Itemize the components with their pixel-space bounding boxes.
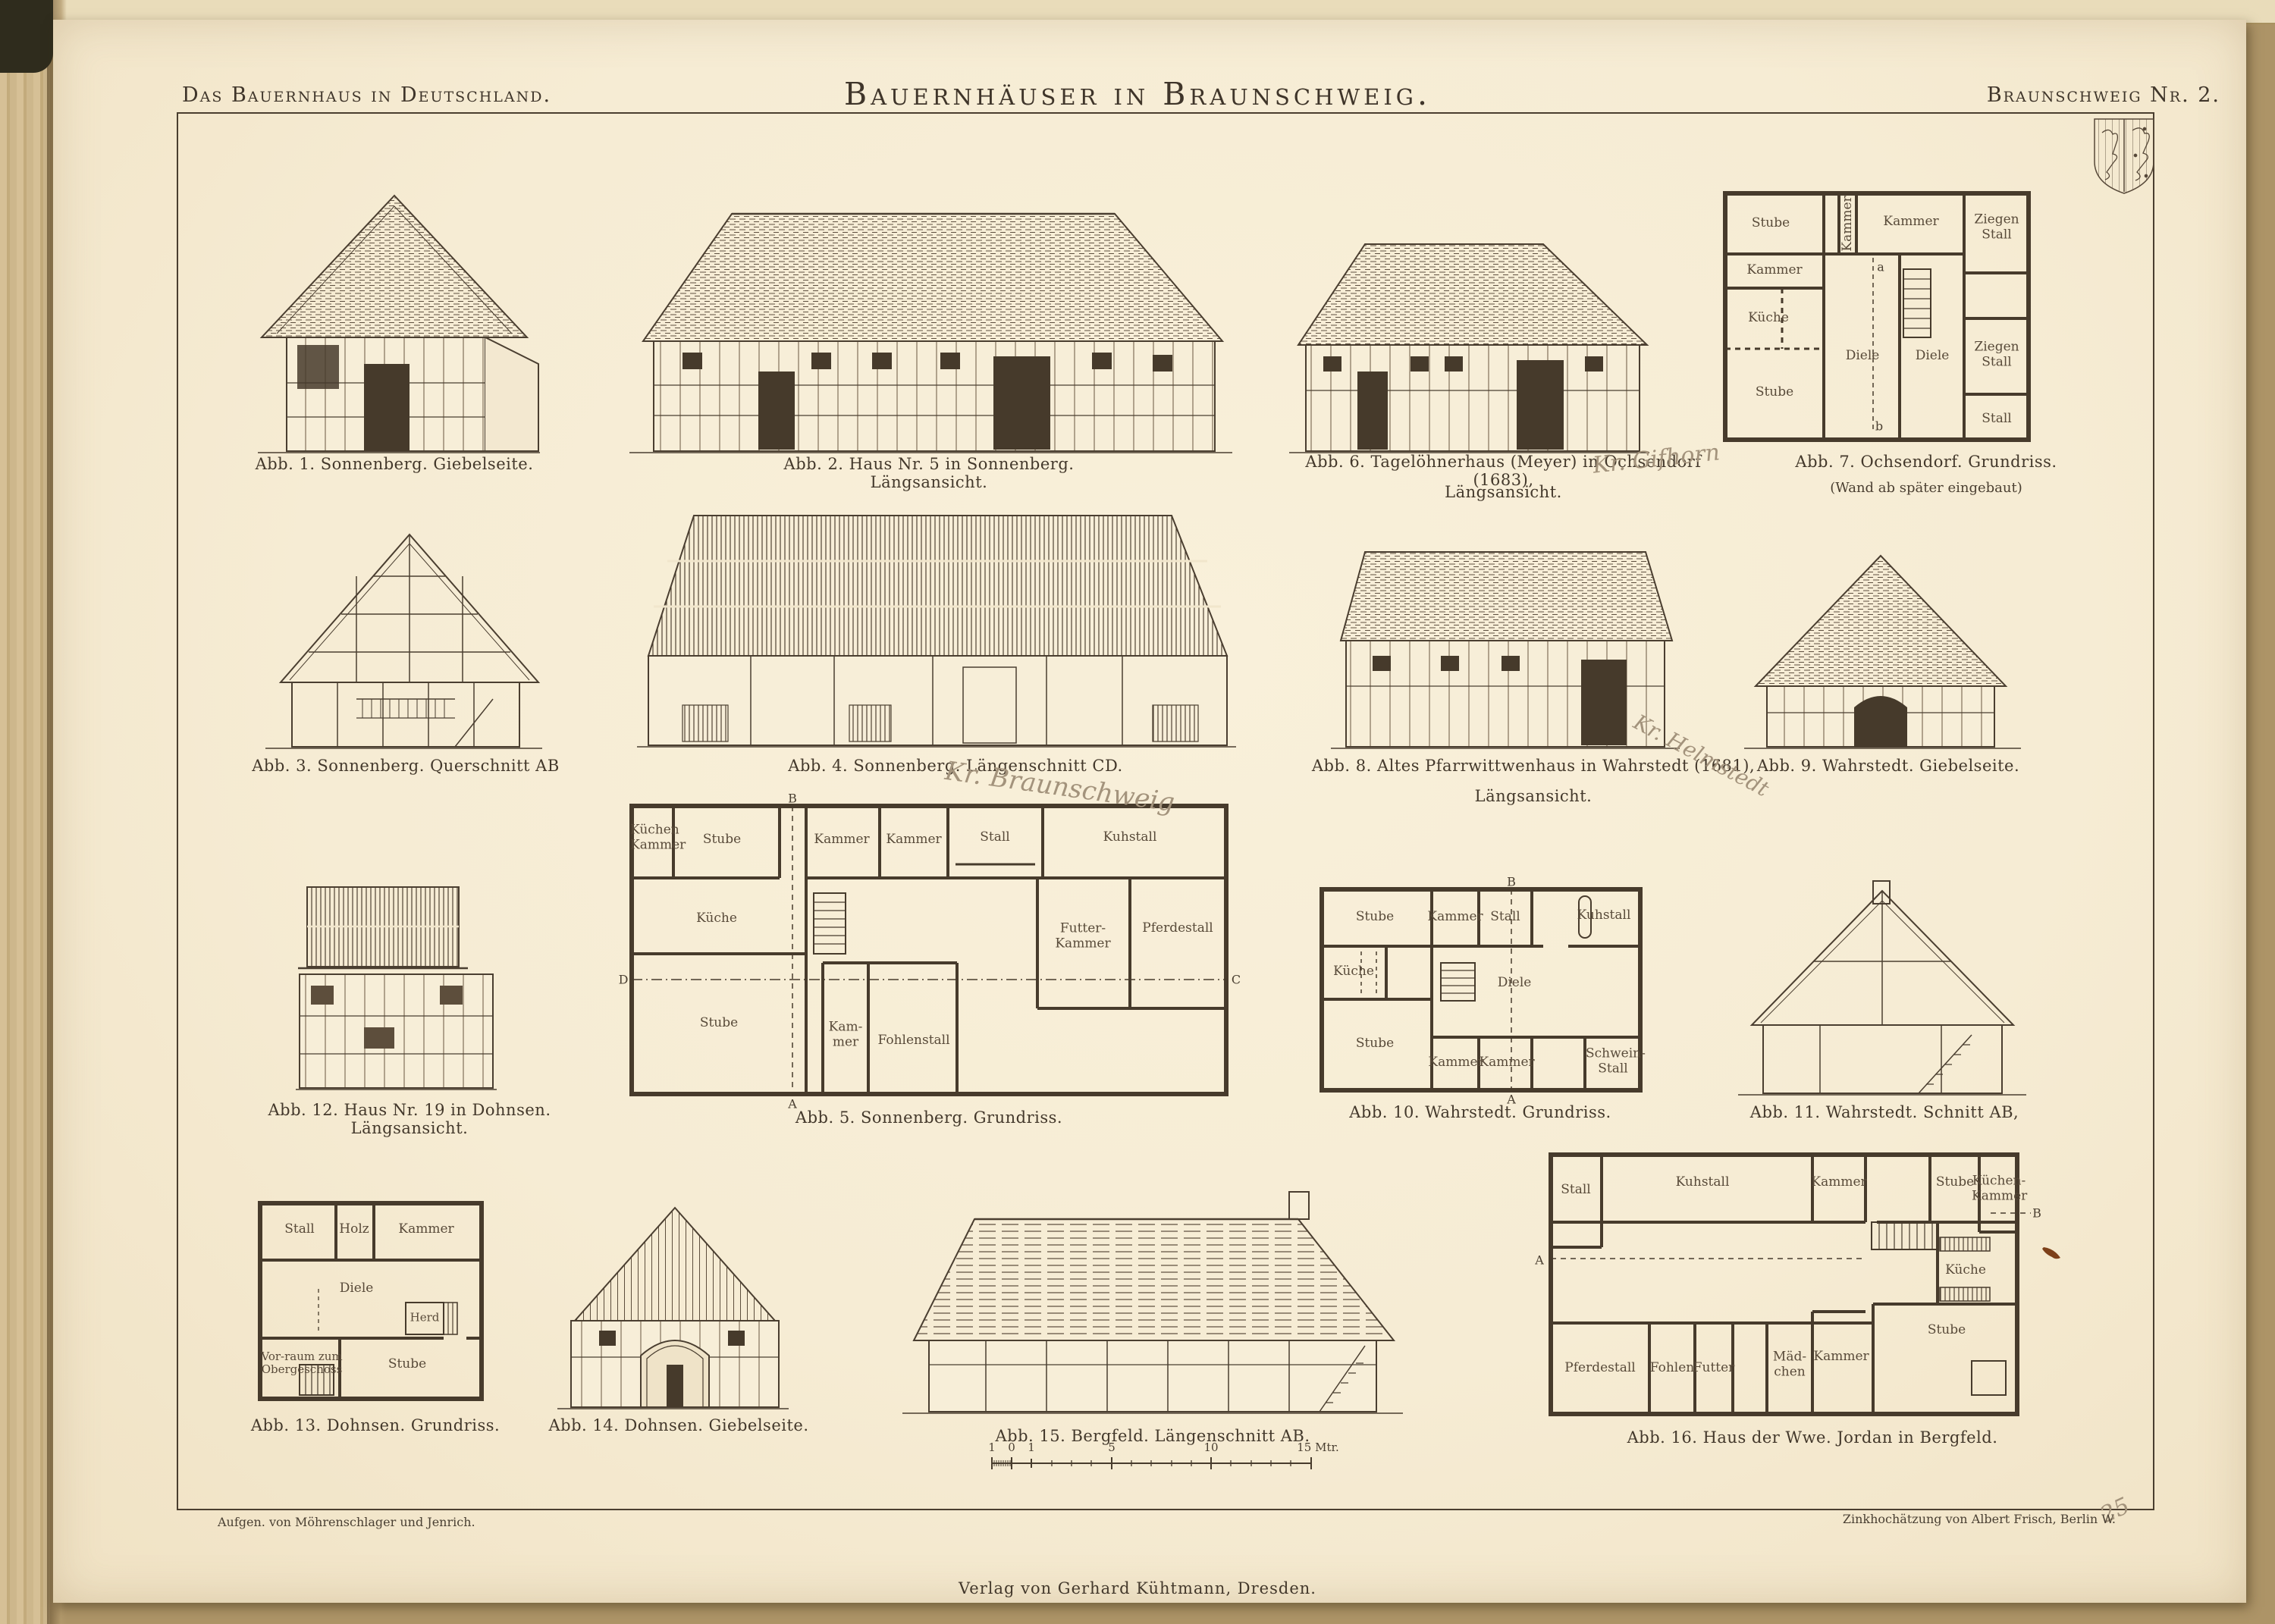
- abb-8-drawing: [1331, 552, 1680, 748]
- section-marker: b: [1875, 419, 1883, 434]
- room-label: Mäd-chen: [1771, 1350, 1809, 1379]
- room-label: Stube: [1356, 910, 1394, 925]
- section-marker: a: [1877, 260, 1884, 274]
- room-label: Kuhstall: [1577, 908, 1631, 923]
- room-label: Kammer: [1811, 1175, 1866, 1190]
- abb-14-caption: Abb. 14. Dohnsen. Giebelseite.: [546, 1416, 811, 1434]
- room-label: Stube: [1756, 385, 1793, 400]
- room-label: Stube: [700, 1016, 738, 1031]
- abb-10-caption: Abb. 10. Wahrstedt. Grundriss.: [1329, 1103, 1632, 1121]
- section-marker: D: [619, 973, 629, 987]
- room-label: Stube: [1928, 1323, 1966, 1338]
- room-label: Kammer: [1813, 1350, 1869, 1365]
- room-label: Diele: [1846, 349, 1880, 364]
- room-label: Küchen-Kammer: [1972, 1174, 2026, 1203]
- scale-label: 10: [1203, 1441, 1218, 1454]
- room-label: Diele: [1916, 349, 1950, 364]
- abb-15-drawing: [902, 1192, 1403, 1413]
- room-label: Herd: [410, 1311, 440, 1324]
- plate-title: Bauernhäuser in Braunschweig.: [758, 76, 1517, 112]
- abb-2-caption: Abb. 2. Haus Nr. 5 in Sonnenberg. Längsa…: [724, 455, 1134, 491]
- abb-6-drawing: [1289, 244, 1649, 453]
- room-label: Fohlenstall: [877, 1033, 949, 1049]
- ink-blot: [2042, 1247, 2060, 1259]
- room-label: Stube: [703, 832, 741, 848]
- room-label: Kammer: [1427, 910, 1483, 925]
- room-label: Küche: [1748, 311, 1789, 326]
- abb-3-caption: Abb. 3. Sonnenberg. Querschnitt AB: [246, 757, 565, 775]
- scale-bar-drawing: [992, 1457, 1312, 1469]
- scanned-plate: Das Bauernhaus in Deutschland. Bauernhäu…: [0, 0, 2275, 1624]
- room-label: Stube: [1752, 216, 1790, 231]
- plate-number: Braunschweig Nr. 2.: [1911, 83, 2220, 107]
- room-label: Stall: [1490, 910, 1520, 925]
- braunschweig-coat-of-arms: [2095, 119, 2154, 193]
- room-label: Stube: [1936, 1175, 1974, 1190]
- room-label: Küche: [1333, 964, 1374, 980]
- room-label: Ziegen Stall: [1972, 340, 2021, 369]
- section-marker: C: [1232, 973, 1241, 987]
- room-label: Kammer: [1428, 1055, 1483, 1071]
- abb-16-caption: Abb. 16. Haus der Wwe. Jordan in Bergfel…: [1600, 1428, 2025, 1447]
- room-label: Diele: [1498, 976, 1532, 991]
- abb-2-drawing: [629, 214, 1232, 453]
- room-label: Fohlen: [1650, 1361, 1695, 1376]
- abb-6-caption-line2: Längsansicht.: [1282, 483, 1725, 501]
- section-marker: A: [1535, 1253, 1544, 1268]
- abb-12-caption: Abb. 12. Haus Nr. 19 in Dohnsen. Längsan…: [227, 1101, 591, 1137]
- publisher-credit: Verlag von Gerhard Kühtmann, Dresden.: [0, 1579, 2275, 1597]
- section-marker: B: [788, 792, 797, 806]
- section-marker: B: [1507, 875, 1516, 889]
- room-label: Pferdestall: [1564, 1361, 1635, 1376]
- room-label: Küche: [696, 911, 737, 926]
- room-label: Kammer: [398, 1222, 453, 1237]
- scale-label: 5: [1108, 1441, 1116, 1454]
- room-label: Stall: [284, 1222, 315, 1237]
- room-label: Kammer: [1840, 196, 1856, 251]
- abb-14-drawing: [557, 1208, 789, 1409]
- abb-7-caption-line2: (Wand ab später eingebaut): [1767, 480, 2085, 496]
- room-label: Kuhstall: [1103, 830, 1157, 845]
- abb-1-caption: Abb. 1. Sonnenberg. Giebelseite.: [243, 455, 546, 473]
- room-label: Stube: [1356, 1036, 1394, 1052]
- room-label: Futter-Kammer: [1049, 921, 1117, 951]
- abb-9-drawing: [1744, 556, 2021, 748]
- scale-label: 15 Mtr.: [1297, 1441, 1339, 1454]
- abb-12-drawing: [296, 887, 497, 1089]
- section-marker: A: [788, 1097, 797, 1111]
- room-label: Kammer: [886, 832, 941, 848]
- etcher-credit: Zinkhochätzung von Albert Frisch, Berlin…: [1737, 1512, 2116, 1526]
- abb-8-caption-line2: Längsansicht.: [1306, 787, 1761, 805]
- room-label: Stall: [1561, 1183, 1591, 1198]
- abb-9-caption: Abb. 9. Wahrstedt. Giebelseite.: [1737, 757, 2040, 775]
- surveyor-credit: Aufgen. von Möhrenschlager und Jenrich.: [218, 1515, 475, 1529]
- room-label: Küche: [1945, 1263, 1986, 1278]
- abb-4-drawing: [637, 516, 1236, 747]
- room-label: Kuhstall: [1676, 1175, 1730, 1190]
- room-label: Stall: [1982, 412, 2012, 427]
- abb-11-drawing: [1738, 881, 2026, 1095]
- room-label: Diele: [340, 1281, 374, 1296]
- room-label: Küchen Kammer: [630, 823, 676, 852]
- series-title: Das Bauernhaus in Deutschland.: [182, 83, 551, 107]
- abb-3-drawing: [265, 535, 542, 748]
- room-label: Kammer: [814, 832, 869, 848]
- room-label: Kammer: [1479, 1055, 1534, 1071]
- scale-label: 1: [988, 1441, 996, 1454]
- abb-7-caption-line1: Abb. 7. Ochsendorf. Grundriss.: [1767, 453, 2085, 471]
- room-label: Stube: [388, 1357, 426, 1372]
- abb-11-caption: Abb. 11. Wahrstedt. Schnitt AB,: [1721, 1103, 2047, 1121]
- abb-1-drawing: [258, 196, 540, 453]
- section-marker: B: [2032, 1206, 2041, 1221]
- room-label: Stall: [980, 830, 1010, 845]
- scale-label: 1: [1028, 1441, 1035, 1454]
- room-label: Futter: [1693, 1361, 1735, 1376]
- section-marker: A: [1507, 1093, 1516, 1107]
- room-label: Pferdestall: [1142, 921, 1213, 936]
- abb-5-drawing: [632, 806, 1226, 1094]
- room-label: Schwein-Stall: [1586, 1046, 1640, 1076]
- scale-label: 0: [1008, 1441, 1015, 1454]
- room-label: Kammer: [1746, 263, 1802, 278]
- room-label: Vor-raum zum Obergeschoss: [259, 1350, 344, 1377]
- room-label: Ziegen Stall: [1972, 212, 2021, 242]
- abb-5-caption: Abb. 5. Sonnenberg. Grundriss.: [766, 1108, 1092, 1127]
- room-label: Holz: [339, 1222, 369, 1237]
- room-label: Kammer: [1883, 215, 1938, 230]
- abb-13-caption: Abb. 13. Dohnsen. Grundriss.: [243, 1416, 508, 1434]
- room-label: Kam-mer: [828, 1020, 863, 1049]
